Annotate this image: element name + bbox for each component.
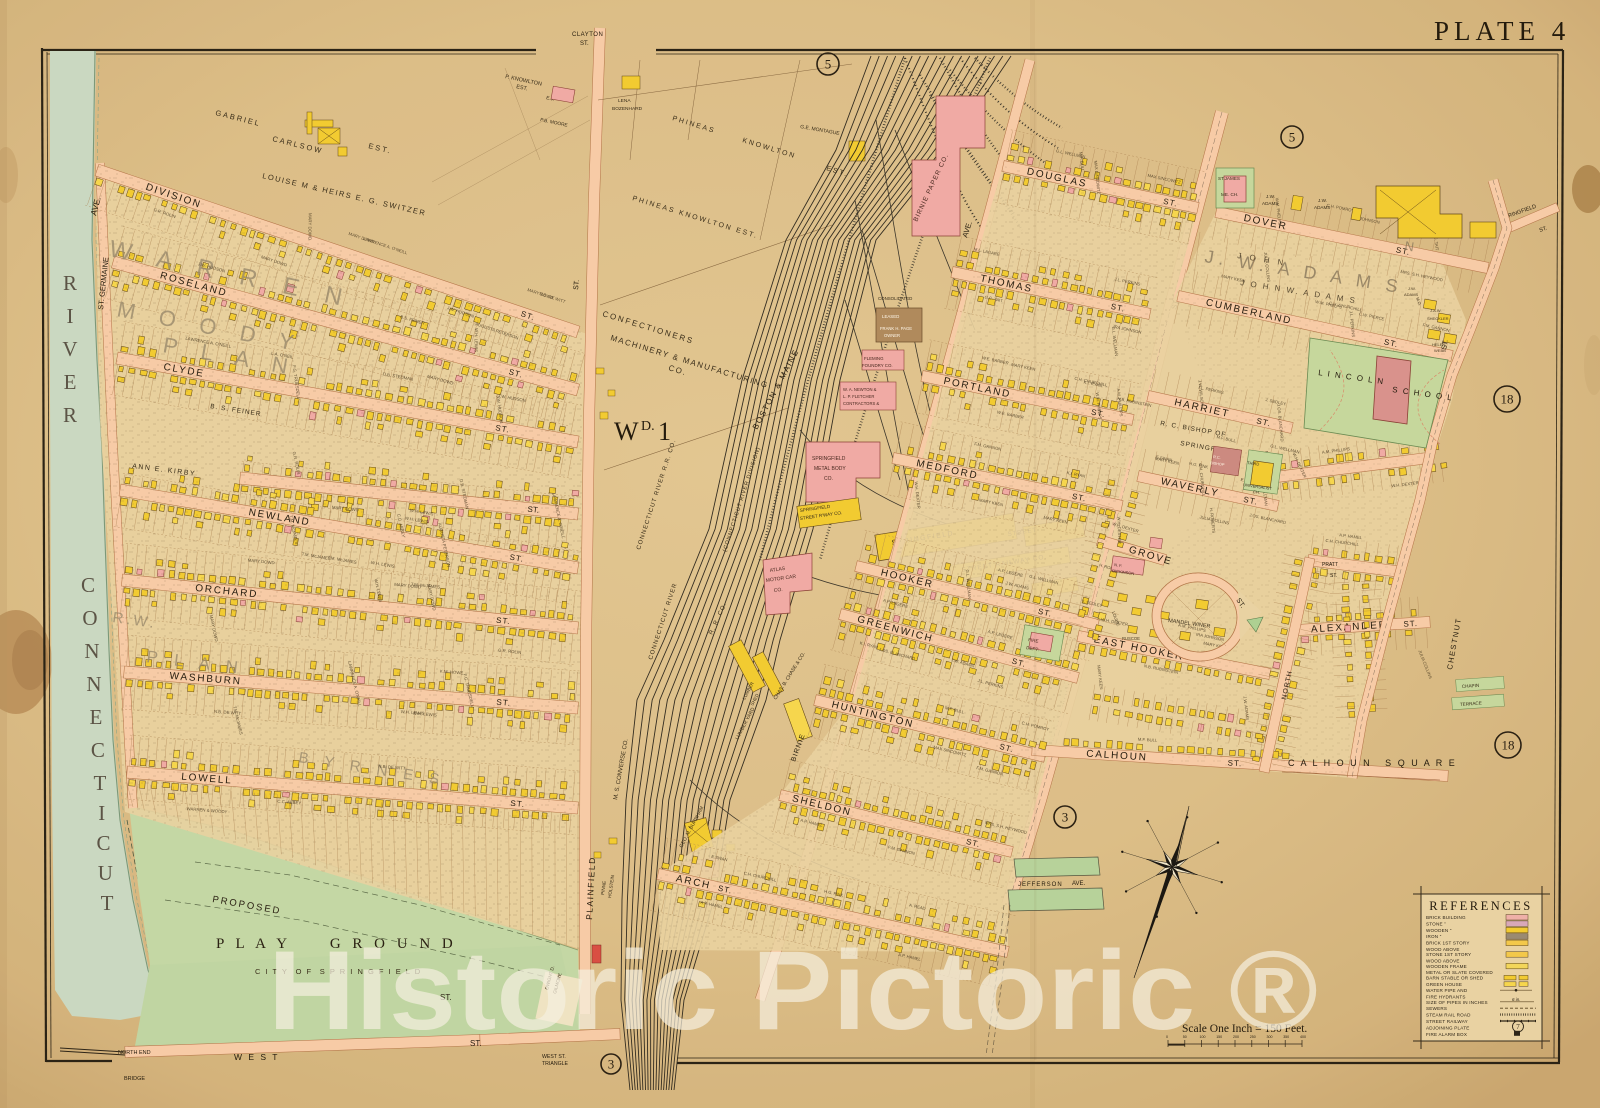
svg-text:O: O — [82, 606, 97, 630]
svg-text:WOODEN FRAME: WOODEN FRAME — [1426, 964, 1467, 969]
svg-text:FRANK H. PAGE: FRANK H. PAGE — [880, 326, 912, 331]
svg-text:N: N — [84, 639, 99, 663]
svg-text:N: N — [86, 672, 101, 696]
svg-text:CO.: CO. — [824, 476, 833, 482]
svg-text:GREEN HOUSE: GREEN HOUSE — [1426, 982, 1462, 987]
svg-text:FIRE ALARM BOX: FIRE ALARM BOX — [1426, 1032, 1467, 1037]
svg-text:CONTRACTORS &: CONTRACTORS & — [843, 401, 879, 406]
svg-text:V: V — [62, 337, 77, 361]
svg-text:FOUNDRY CO.: FOUNDRY CO. — [862, 363, 893, 368]
svg-text:W.H. DEXTER: W.H. DEXTER — [1117, 517, 1123, 544]
svg-text:C: C — [91, 738, 105, 762]
svg-text:CO.: CO. — [773, 587, 783, 594]
svg-text:W.H. LEWIS: W.H. LEWIS — [474, 328, 479, 352]
svg-text:CLAYTON: CLAYTON — [572, 32, 603, 38]
svg-text:RUSCOE: RUSCOE — [1122, 636, 1140, 641]
svg-text:BRICK 1ST STORY: BRICK 1ST STORY — [1426, 941, 1470, 946]
svg-text:W. A. NEWTON &: W. A. NEWTON & — [843, 387, 877, 392]
svg-text:LEASED: LEASED — [882, 314, 899, 319]
svg-text:BOZENHARD: BOZENHARD — [612, 106, 643, 112]
svg-text:U: U — [98, 861, 113, 885]
svg-text:ADAMS: ADAMS — [1262, 201, 1278, 206]
svg-text:R: R — [63, 271, 77, 295]
svg-text:ME. CH.: ME. CH. — [1221, 192, 1238, 197]
svg-text:W E S T: W E S T — [234, 1052, 280, 1062]
svg-text:OWNER: OWNER — [884, 333, 900, 338]
svg-text:SEWERS: SEWERS — [1426, 1006, 1447, 1011]
svg-text:JEFFERSON: JEFFERSON — [1018, 882, 1063, 888]
svg-text:PRATT: PRATT — [1322, 562, 1338, 568]
svg-text:1: 1 — [658, 417, 671, 446]
svg-text:18: 18 — [1502, 738, 1515, 753]
svg-text:ST.: ST. — [1403, 619, 1418, 629]
svg-text:WOODEN ”: WOODEN ” — [1426, 928, 1452, 933]
svg-text:TRIANGLE: TRIANGLE — [542, 1061, 568, 1067]
svg-text:CONSOLIDATED: CONSOLIDATED — [878, 296, 912, 301]
svg-text:ST.: ST. — [1330, 573, 1337, 579]
svg-text:LENA: LENA — [618, 98, 631, 104]
svg-text:C A L H O U N S Q U A R E: C A L H O U N S Q U A R E — [1288, 758, 1457, 768]
svg-text:C: C — [96, 831, 110, 855]
svg-text:WEST ST.: WEST ST. — [542, 1054, 566, 1060]
svg-text:T: T — [93, 771, 106, 795]
svg-text:ADAMS: ADAMS — [1404, 292, 1419, 297]
svg-text:J.W.: J.W. — [1266, 194, 1275, 199]
svg-text:T: T — [101, 891, 114, 915]
svg-text:STONE 1ST STORY: STONE 1ST STORY — [1426, 952, 1471, 957]
svg-text:METAL BODY: METAL BODY — [814, 466, 846, 472]
svg-text:FLEMING: FLEMING — [864, 356, 884, 361]
svg-text:5: 5 — [1289, 130, 1296, 145]
svg-text:7: 7 — [1516, 1023, 1520, 1031]
svg-text:SIZE OF PIPES IN INCHES: SIZE OF PIPES IN INCHES — [1426, 1000, 1488, 1005]
svg-text:REFERENCES: REFERENCES — [1429, 899, 1533, 913]
svg-text:AVE.: AVE. — [1072, 881, 1086, 887]
svg-text:D.: D. — [641, 419, 655, 434]
svg-text:18: 18 — [1501, 392, 1514, 407]
svg-text:PLATE 4: PLATE 4 — [1434, 16, 1570, 46]
svg-text:SHECKLER: SHECKLER — [1427, 316, 1449, 321]
svg-text:L. P. FLETCHER: L. P. FLETCHER — [843, 394, 874, 399]
svg-text:ADJOINING PLATE: ADJOINING PLATE — [1426, 1025, 1470, 1030]
svg-text:J.W.: J.W. — [1408, 286, 1416, 291]
svg-text:CH.: CH. — [1253, 489, 1261, 495]
svg-text:BRICK BUILDING: BRICK BUILDING — [1426, 915, 1466, 920]
svg-text:5: 5 — [825, 57, 832, 72]
svg-text:WATER PIPE AND: WATER PIPE AND — [1426, 988, 1468, 993]
svg-text:ADAMS: ADAMS — [1314, 205, 1330, 210]
svg-text:STEAM RAIL ROAD: STEAM RAIL ROAD — [1426, 1013, 1471, 1018]
svg-text:C: C — [81, 573, 95, 597]
svg-text:ST.: ST. — [573, 279, 581, 290]
svg-text:I: I — [67, 304, 74, 328]
svg-text:STONE ”: STONE ” — [1426, 921, 1446, 926]
svg-text:ST.JAMES: ST.JAMES — [1218, 176, 1240, 181]
svg-text:SPRINGFIELD: SPRINGFIELD — [812, 456, 846, 462]
svg-text:3: 3 — [608, 1057, 615, 1072]
svg-text:R: R — [63, 403, 77, 427]
svg-text:Historic Pictoric ®: Historic Pictoric ® — [268, 928, 1318, 1053]
svg-text:STREET RAILWAY: STREET RAILWAY — [1426, 1019, 1468, 1024]
svg-text:BARN STABLE OR SHED: BARN STABLE OR SHED — [1426, 975, 1484, 980]
svg-text:3: 3 — [1062, 810, 1069, 825]
svg-text:BRIDGE: BRIDGE — [124, 1076, 145, 1082]
svg-text:E: E — [64, 370, 77, 394]
svg-text:J.A.W.: J.A.W. — [1430, 308, 1442, 313]
svg-text:IRON ”: IRON ” — [1426, 934, 1442, 939]
svg-text:6 in.: 6 in. — [1512, 997, 1521, 1002]
svg-text:MARY DOWD: MARY DOWD — [307, 213, 312, 240]
svg-text:E: E — [89, 705, 102, 729]
svg-text:I: I — [98, 801, 105, 825]
svg-text:W: W — [614, 417, 639, 446]
svg-text:ST.: ST. — [580, 41, 589, 47]
svg-text:J.W.: J.W. — [1318, 198, 1327, 203]
